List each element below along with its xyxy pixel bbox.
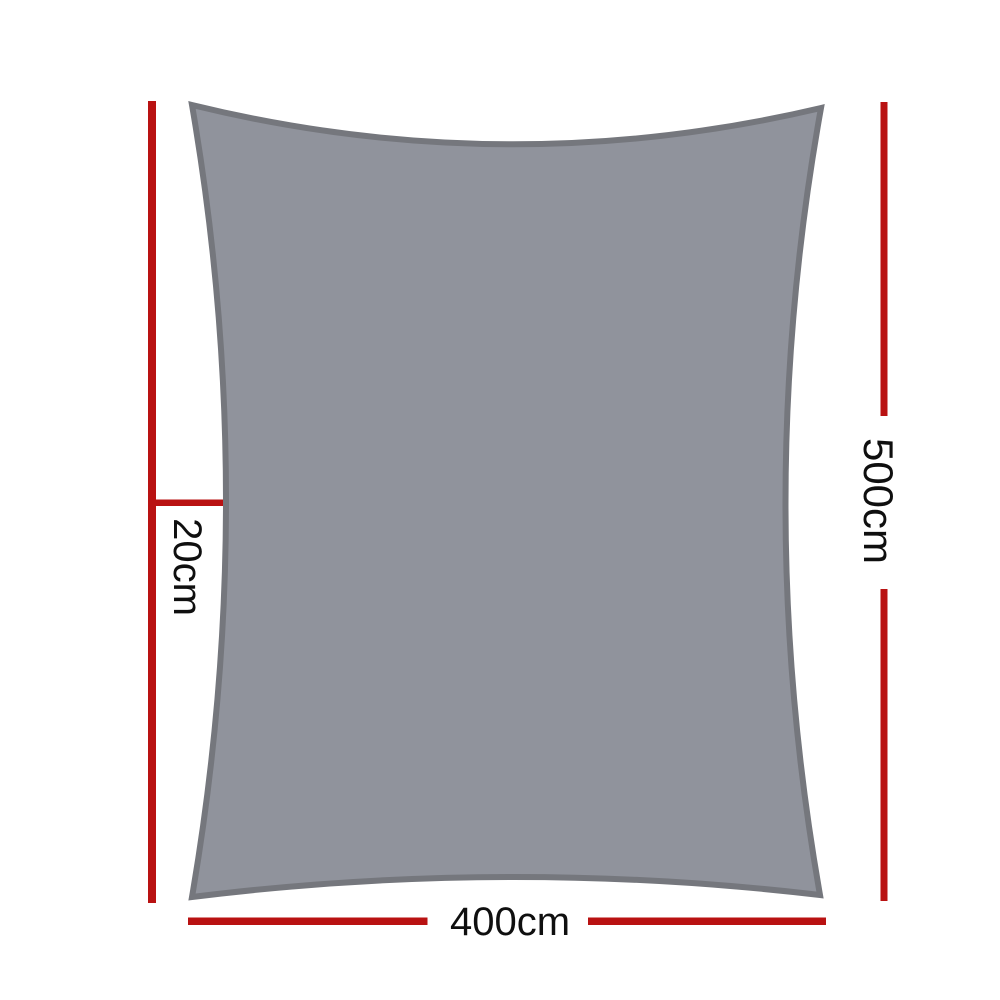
svg-text:20cm: 20cm bbox=[165, 518, 209, 616]
svg-text:500cm: 500cm bbox=[855, 438, 902, 564]
svg-text:400cm: 400cm bbox=[450, 900, 570, 944]
